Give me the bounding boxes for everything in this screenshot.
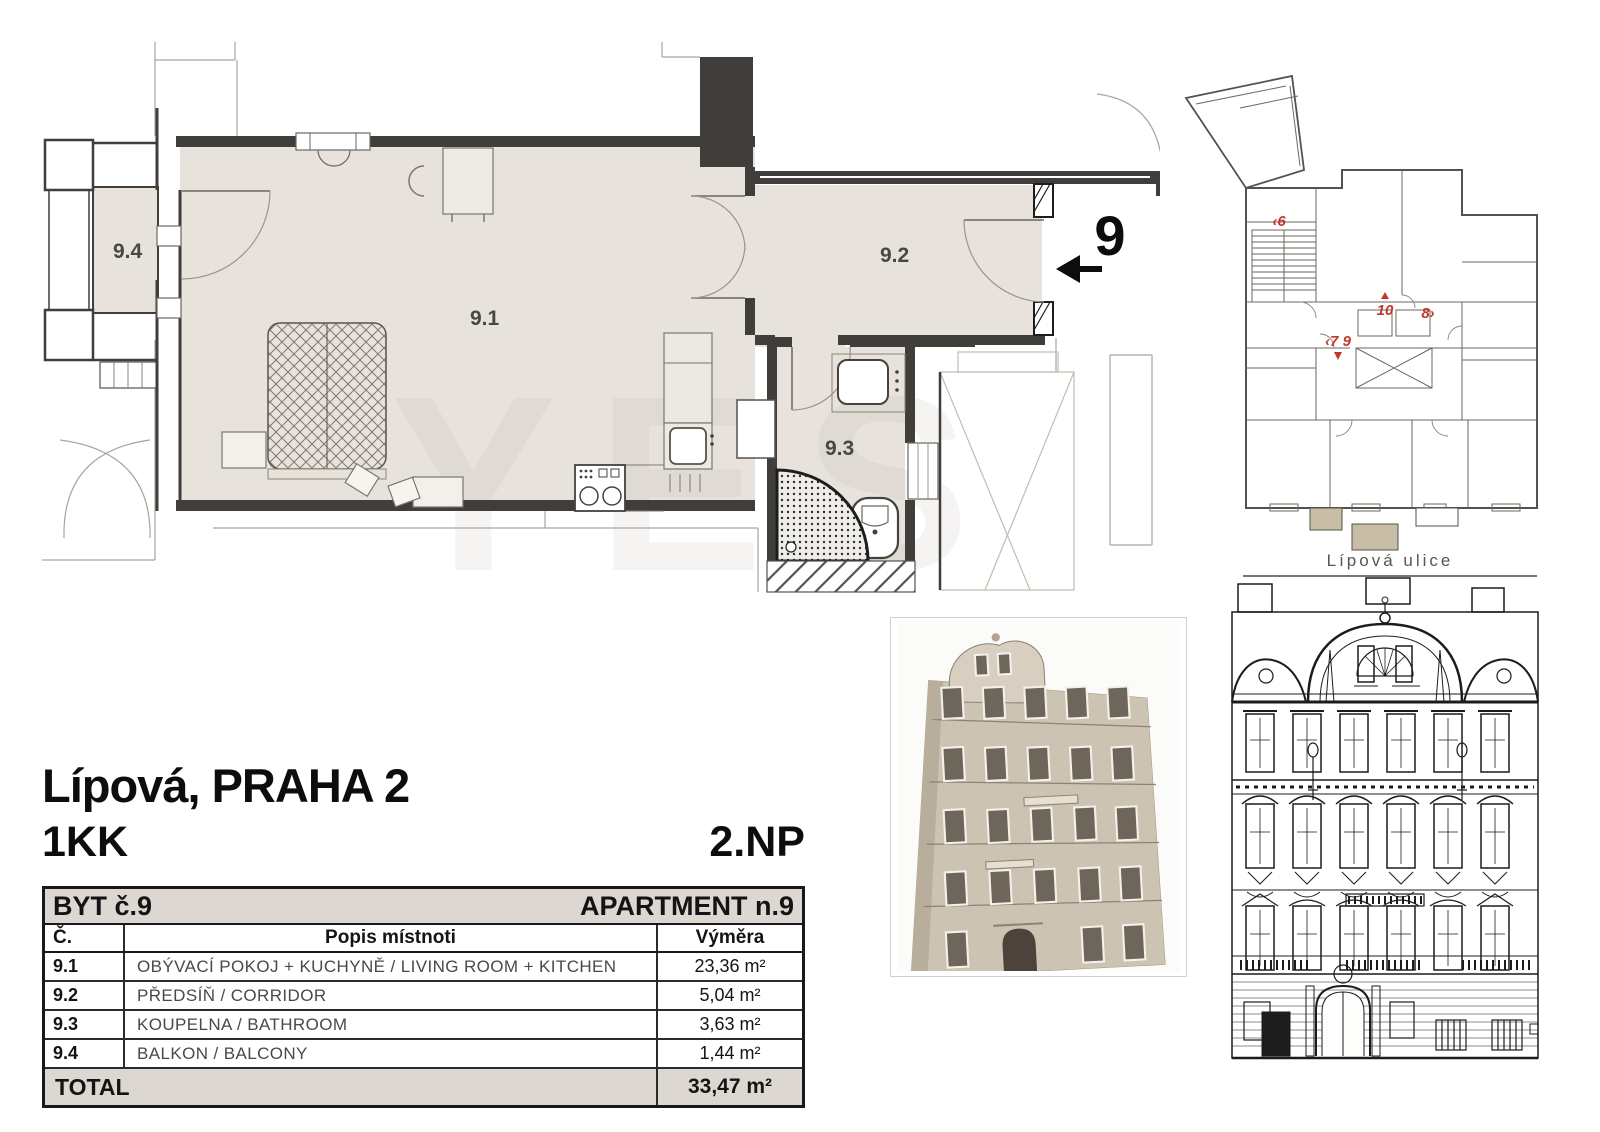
building-photo xyxy=(890,617,1187,977)
elevation-floor3 xyxy=(1232,796,1538,897)
table-row: 9.1 OBÝVACÍ POKOJ + KUCHYNĚ / LIVING ROO… xyxy=(45,953,802,982)
row-num: 9.1 xyxy=(45,953,125,980)
label-room-9-4: 9.4 xyxy=(113,240,143,263)
row-num: 9.2 xyxy=(45,982,125,1009)
floor-label: 2.NP xyxy=(709,818,805,867)
facade-drawing xyxy=(1225,575,1555,1070)
row-num: 9.3 xyxy=(45,1011,125,1038)
site-plan: ‹6 10 8› ‹7 9 Lípová ulice xyxy=(1150,55,1600,585)
row-area: 1,44 m² xyxy=(656,1040,802,1067)
table-row: 9.2 PŘEDSÍŇ / CORRIDOR 5,04 m² xyxy=(45,982,802,1011)
disposition-label: 1KK xyxy=(42,818,128,867)
row-num: 9.4 xyxy=(45,1040,125,1067)
apartment-number: 9 xyxy=(1094,204,1125,267)
table-title-en: APARTMENT n.9 xyxy=(580,891,794,922)
col-header-num: Č. xyxy=(45,925,125,951)
col-header-desc: Popis místnoti xyxy=(125,925,656,951)
row-desc: KOUPELNA / BATHROOM xyxy=(137,1015,347,1035)
table-total-row: TOTAL 33,47 m² xyxy=(45,1069,802,1105)
row-desc: PŘEDSÍŇ / CORRIDOR xyxy=(137,986,327,1006)
page-title: Lípová, PRAHA 2 xyxy=(42,760,742,812)
row-area: 3,63 m² xyxy=(656,1011,802,1038)
table-row: 9.3 KOUPELNA / BATHROOM 3,63 m² xyxy=(45,1011,802,1040)
site-unit-10: 10 xyxy=(1377,302,1394,319)
label-room-9-3: 9.3 xyxy=(825,437,854,460)
row-desc: OBÝVACÍ POKOJ + KUCHYNĚ / LIVING ROOM + … xyxy=(137,957,616,977)
elevation-floor2 xyxy=(1232,894,1538,974)
table-title-cz: BYT č.9 xyxy=(53,891,152,922)
elevation-floor4 xyxy=(1232,711,1538,800)
table-column-headers: Č. Popis místnoti Výměra xyxy=(45,925,802,953)
col-header-area: Výměra xyxy=(656,925,802,951)
total-label: TOTAL xyxy=(45,1069,656,1105)
table-header: BYT č.9 APARTMENT n.9 xyxy=(45,889,802,925)
entrance-thresholds xyxy=(1310,508,1458,550)
label-room-9-2: 9.2 xyxy=(880,244,909,267)
street-label: Lípová ulice xyxy=(1327,551,1454,570)
page: YES xyxy=(0,0,1600,1132)
row-area: 5,04 m² xyxy=(656,982,802,1009)
row-desc: BALKON / BALCONY xyxy=(137,1044,308,1064)
table-row: 9.4 BALKON / BALCONY 1,44 m² xyxy=(45,1040,802,1069)
label-room-9-1: 9.1 xyxy=(470,307,500,330)
site-unit-79: ‹7 9 xyxy=(1325,333,1352,350)
site-unit-8: 8› xyxy=(1421,305,1434,322)
site-unit-6: ‹6 xyxy=(1272,213,1286,230)
row-area: 23,36 m² xyxy=(656,953,802,980)
apartment-table: BYT č.9 APARTMENT n.9 Č. Popis místnoti … xyxy=(42,886,805,1108)
subtitle-row: 1KK 2.NP xyxy=(42,818,805,866)
total-area: 33,47 m² xyxy=(656,1069,802,1105)
main-floor-plan: YES xyxy=(40,40,1160,600)
elevation-ground xyxy=(1232,965,1538,1058)
